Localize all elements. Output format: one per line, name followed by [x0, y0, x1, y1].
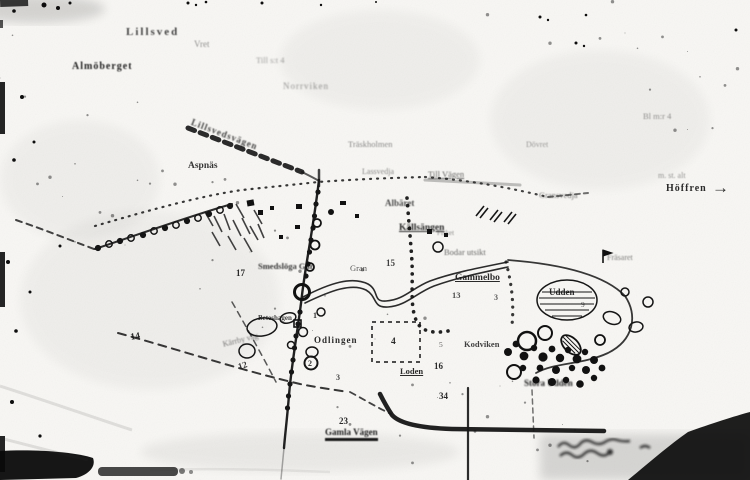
scanned-map-page: LillsvedVretAlmöbergetTill s:t 4Norrvike…	[0, 0, 750, 480]
map-linework	[0, 0, 750, 480]
paper-noise	[0, 0, 750, 480]
